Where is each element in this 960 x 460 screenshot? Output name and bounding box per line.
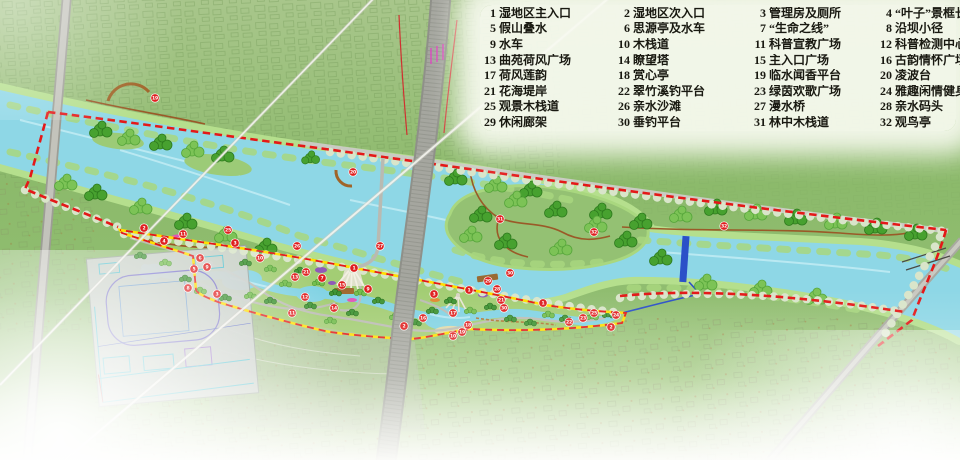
legend-number-23: 23 [742, 85, 766, 97]
legend-label-7: “生命之线” [769, 22, 865, 34]
legend-label-8: 沿坝小径 [895, 22, 960, 34]
legend-label-32: 观鸟亭 [895, 116, 960, 128]
legend-number-27: 27 [742, 100, 766, 112]
map-marker-2: 22 湿地区次入口 [140, 224, 148, 232]
legend-number-29: 29 [480, 116, 496, 128]
legend-number-22: 22 [606, 85, 630, 97]
svg-text:31: 31 [497, 217, 503, 223]
legend-label-30: 垂钓平台 [633, 116, 739, 128]
legend-label-11: 科普宣教广场 [769, 38, 865, 50]
legend-number-2: 2 [606, 7, 630, 19]
svg-text:32: 32 [591, 230, 597, 236]
svg-text:26: 26 [294, 244, 300, 250]
svg-text:27: 27 [377, 244, 383, 250]
legend-label-5: 假山叠水 [499, 22, 603, 34]
legend-label-13: 曲苑荷风广场 [499, 54, 603, 66]
legend-label-19: 临水闻香平台 [769, 69, 865, 81]
map-marker-27: 2727 漫水桥 [376, 242, 384, 250]
legend-number-9: 9 [480, 38, 496, 50]
legend-number-32: 32 [868, 116, 892, 128]
legend-label-27: 漫水桥 [769, 100, 865, 112]
wetland-park-masterplan: 1919 临水闻香平台2020 凌波台2727 漫水桥3131 林中木栈道323… [0, 0, 960, 460]
legend-number-17: 17 [480, 69, 496, 81]
legend-label-3: 管理房及厕所 [769, 7, 865, 19]
map-marker-25: 2525 观景木栈道 [224, 226, 232, 234]
svg-text:3: 3 [234, 241, 237, 247]
legend-label-21: 花海堤岸 [499, 85, 603, 97]
legend-label-31: 林中木栈道 [769, 116, 865, 128]
legend-number-5: 5 [480, 22, 496, 34]
map-marker-31: 3131 林中木栈道 [496, 215, 504, 223]
legend-label-25: 观景木栈道 [499, 100, 603, 112]
legend-number-28: 28 [868, 100, 892, 112]
legend-label-12: 科普检测中心 [895, 38, 960, 50]
legend-label-17: 荷风莲韵 [499, 69, 603, 81]
legend-number-30: 30 [606, 116, 630, 128]
legend-number-8: 8 [868, 22, 892, 34]
legend-number-11: 11 [742, 38, 766, 50]
legend-number-7: 7 [742, 22, 766, 34]
legend-label-4: “叶子”景框长廊 [895, 7, 960, 19]
legend-number-1: 1 [480, 7, 496, 19]
legend-label-26: 亲水沙滩 [633, 100, 739, 112]
legend-label-29: 休闲廊架 [499, 116, 603, 128]
legend-number-14: 14 [606, 54, 630, 66]
svg-text:20: 20 [350, 170, 356, 176]
legend-label-24: 雅趣闲情健身广场 [895, 85, 960, 97]
map-marker-3: 33 管理房及厕所 [231, 239, 239, 247]
legend-number-31: 31 [742, 116, 766, 128]
legend-number-25: 25 [480, 100, 496, 112]
legend-label-15: 主入口广场 [769, 54, 865, 66]
legend-number-16: 16 [868, 54, 892, 66]
svg-text:25: 25 [225, 228, 231, 234]
svg-text:29: 29 [485, 279, 491, 285]
map-marker-32: 3232 观鸟亭 [590, 228, 598, 236]
legend-number-21: 21 [480, 85, 496, 97]
map-marker-26: 2626 亲水沙滩 [293, 242, 301, 250]
legend-number-3: 3 [742, 7, 766, 19]
legend-label-6: 思源亭及水车 [633, 22, 739, 34]
legend-label-16: 古韵情怀广场 [895, 54, 960, 66]
legend-number-19: 19 [742, 69, 766, 81]
legend-number-20: 20 [868, 69, 892, 81]
legend-label-22: 翠竹溪钓平台 [633, 85, 739, 97]
legend-panel: 1湿地区主入口2湿地区次入口3管理房及厕所4“叶子”景框长廊5假山叠水6思源亭及… [480, 5, 956, 131]
map-marker-20: 2020 凌波台 [349, 168, 357, 176]
legend-label-28: 亲水码头 [895, 100, 960, 112]
map-marker-30: 3030 垂钓平台 [506, 269, 514, 277]
legend-number-10: 10 [606, 38, 630, 50]
map-marker-4: 44 “叶子”景框长廊 [160, 237, 168, 245]
legend-number-13: 13 [480, 54, 496, 66]
legend-label-2: 湿地区次入口 [633, 7, 739, 19]
legend-label-14: 瞭望塔 [633, 54, 739, 66]
map-marker-29: 2929 休闲廊架 [484, 277, 492, 285]
svg-text:11: 11 [180, 232, 186, 238]
legend-label-23: 绿茵欢歌广场 [769, 85, 865, 97]
map-marker-32: 3232 观鸟亭 [720, 222, 728, 230]
legend-number-4: 4 [868, 7, 892, 19]
legend-label-18: 赏心亭 [633, 69, 739, 81]
legend-number-18: 18 [606, 69, 630, 81]
svg-text:32: 32 [721, 224, 727, 230]
svg-text:4: 4 [163, 239, 166, 245]
legend-label-10: 木栈道 [633, 38, 739, 50]
legend-label-1: 湿地区主入口 [499, 7, 603, 19]
legend-number-6: 6 [606, 22, 630, 34]
legend-label-9: 水车 [499, 38, 603, 50]
legend-label-20: 凌波台 [895, 69, 960, 81]
legend-number-26: 26 [606, 100, 630, 112]
legend-number-15: 15 [742, 54, 766, 66]
legend-number-24: 24 [868, 85, 892, 97]
svg-text:30: 30 [507, 271, 513, 277]
legend-number-12: 12 [868, 38, 892, 50]
map-marker-11: 1111 科普宣教广场 [179, 230, 187, 238]
svg-text:2: 2 [143, 226, 146, 232]
